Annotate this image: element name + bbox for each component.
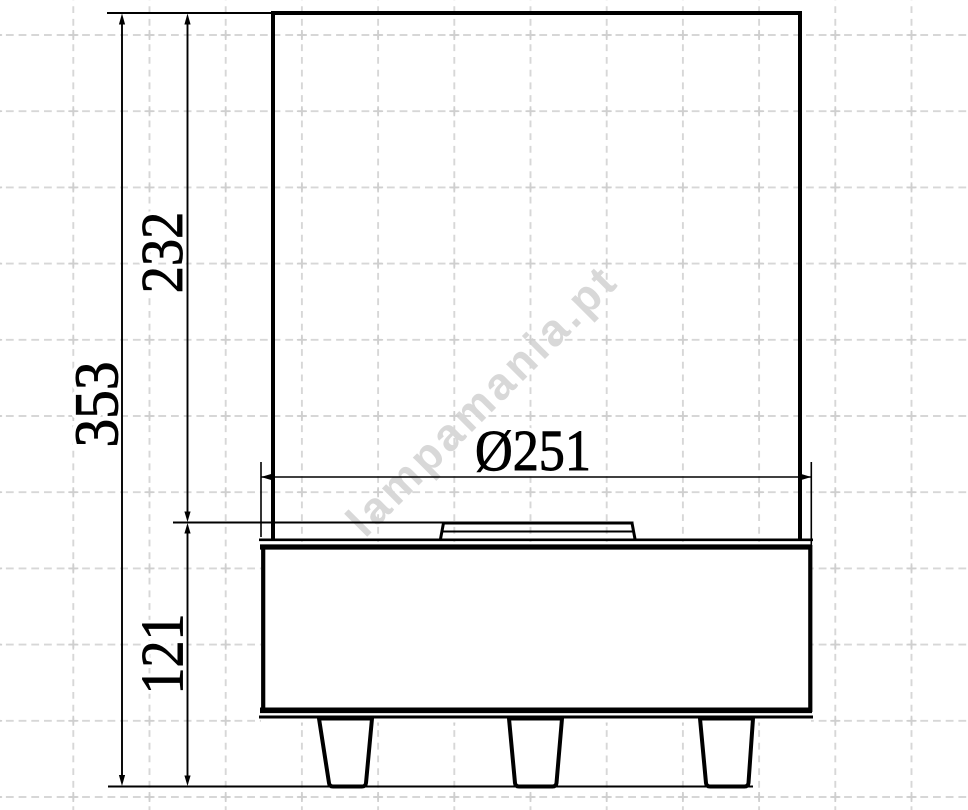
svg-text:232: 232 — [130, 212, 196, 293]
svg-text:121: 121 — [130, 614, 196, 695]
svg-text:353: 353 — [62, 361, 131, 447]
svg-text:Ø251: Ø251 — [475, 418, 591, 482]
